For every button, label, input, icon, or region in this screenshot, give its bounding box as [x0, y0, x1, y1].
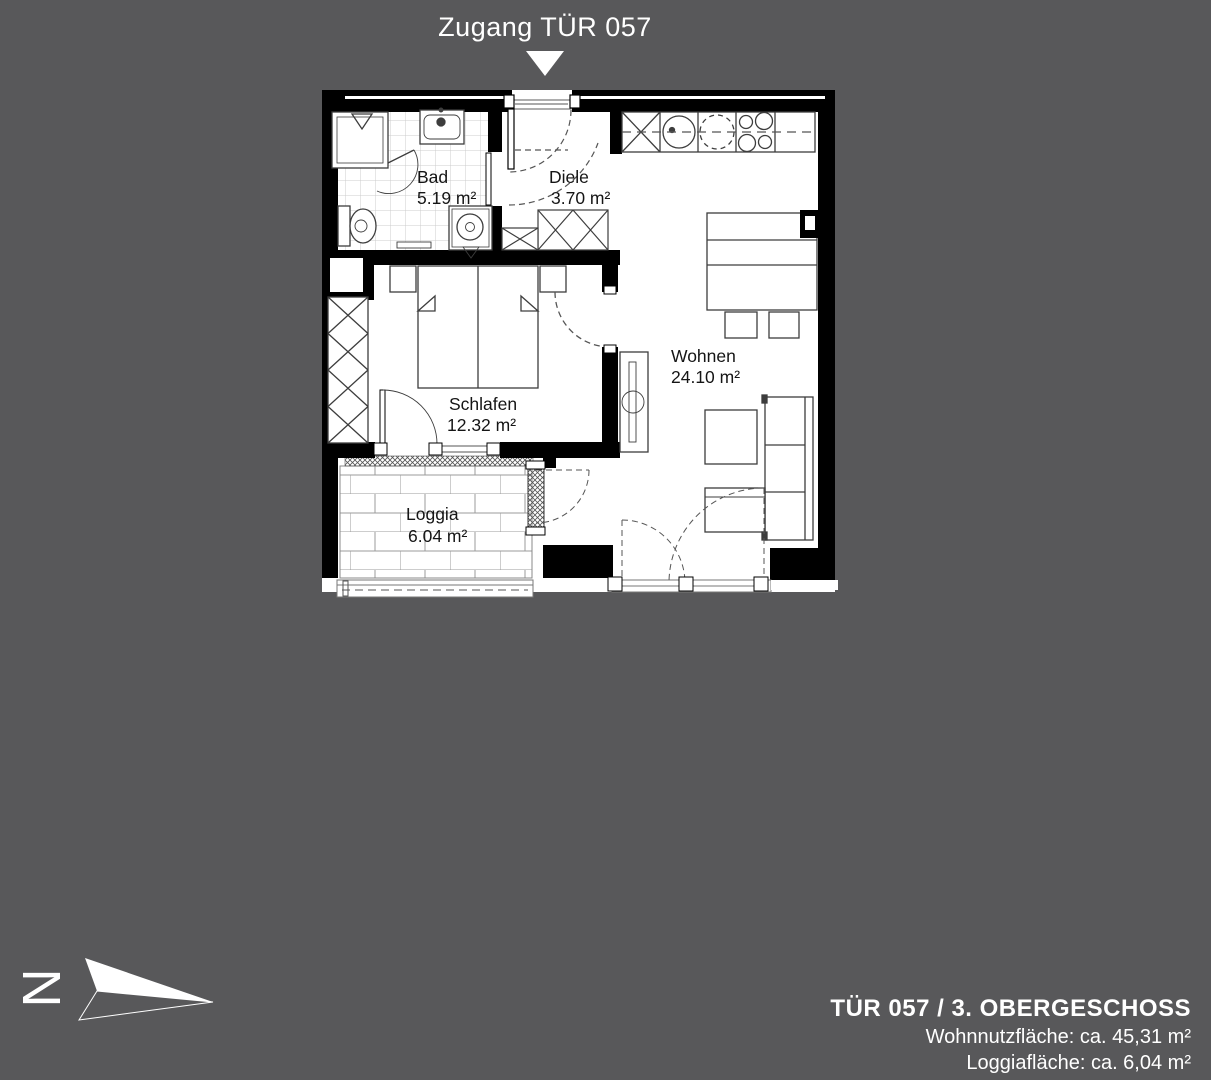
room-label-wohnen: Wohnen 24.10 m² [671, 346, 740, 387]
shower [332, 112, 388, 168]
svg-text:6.04 m²: 6.04 m² [408, 526, 467, 546]
svg-text:Bad: Bad [417, 167, 448, 187]
washing-machine [449, 206, 492, 258]
double-bed [418, 266, 538, 388]
duct-block [800, 210, 818, 238]
svg-text:24.10 m²: 24.10 m² [671, 367, 740, 387]
dining-chair [725, 312, 757, 338]
room-label-schlafen: Schlafen 12.32 m² [447, 394, 517, 435]
kitchen-counter [622, 112, 817, 152]
wardrobe-schlafen [328, 297, 368, 443]
svg-text:5.19 m²: 5.19 m² [417, 188, 476, 208]
nightstand-left [390, 266, 416, 292]
north-arrow: N [11, 958, 213, 1020]
loggia-railing [337, 580, 533, 597]
bad-sliding-door [486, 153, 491, 205]
floor-plan-svg: Bad 5.19 m² Diele 3.70 m² Wohnen 24.10 m… [0, 0, 1211, 1080]
tv-sideboard [620, 352, 648, 452]
footer-info: TÜR 057 / 3. OBERGESCHOSS Wohnnutzfläche… [830, 994, 1191, 1076]
exterior-face-line [345, 96, 825, 99]
bath-mat [397, 242, 431, 248]
sink [420, 108, 464, 144]
dining-chair [769, 312, 799, 338]
svg-text:Diele: Diele [549, 167, 589, 187]
svg-text:Wohnen: Wohnen [671, 346, 736, 366]
svg-text:Schlafen: Schlafen [449, 394, 517, 414]
shaft-niche [330, 258, 363, 292]
north-arrow-icon [85, 958, 213, 1002]
unit-title: TÜR 057 / 3. OBERGESCHOSS [830, 994, 1191, 1024]
nightstand-right [540, 266, 566, 292]
access-label: Zugang TÜR 057 [438, 12, 652, 43]
access-arrow-down-icon [526, 51, 564, 76]
loggia-area-line: Loggiafläche: ca. 6,04 m² [830, 1050, 1191, 1076]
north-label: N [11, 969, 71, 1008]
toilet [338, 206, 376, 246]
living-area-line: Wohnnutzfläche: ca. 45,31 m² [830, 1024, 1191, 1050]
svg-text:3.70 m²: 3.70 m² [551, 188, 610, 208]
page: Zugang TÜR 057 [0, 0, 1211, 1080]
coffee-table [705, 410, 757, 464]
svg-text:Loggia: Loggia [406, 504, 459, 524]
svg-text:12.32 m²: 12.32 m² [447, 415, 516, 435]
